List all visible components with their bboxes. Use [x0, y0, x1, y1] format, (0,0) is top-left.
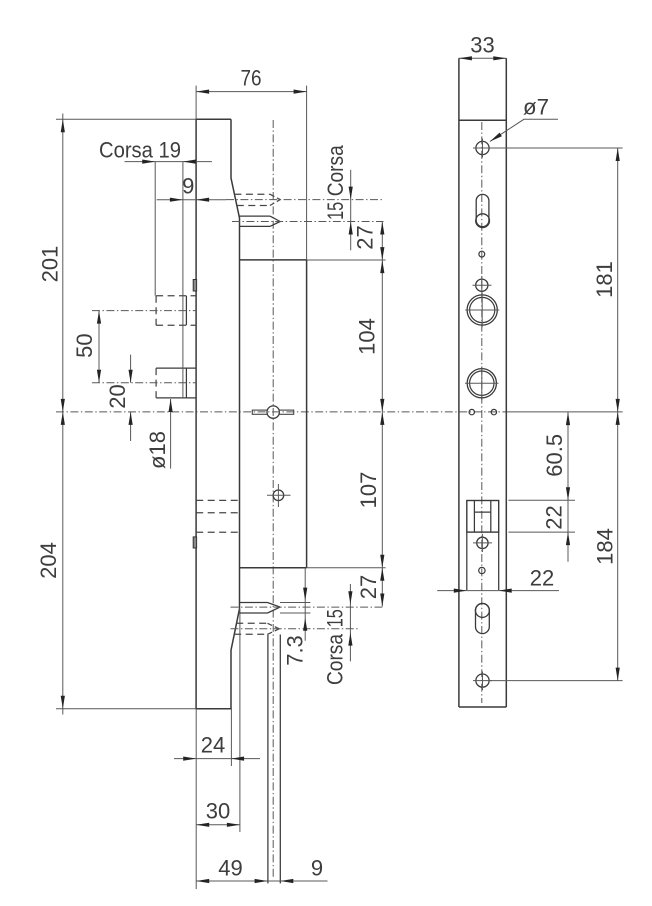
svg-text:30: 30 — [206, 799, 230, 824]
svg-text:22: 22 — [542, 505, 567, 529]
svg-text:7.3: 7.3 — [283, 635, 308, 666]
svg-text:201: 201 — [38, 246, 63, 283]
svg-text:27: 27 — [356, 575, 381, 599]
svg-text:204: 204 — [36, 542, 61, 579]
svg-text:9: 9 — [311, 856, 323, 881]
svg-text:33: 33 — [470, 33, 494, 58]
svg-text:15: 15 — [323, 202, 348, 220]
svg-text:20: 20 — [105, 384, 130, 408]
svg-text:60.5: 60.5 — [542, 434, 567, 477]
svg-text:50: 50 — [72, 333, 97, 357]
svg-text:15: 15 — [323, 609, 348, 627]
svg-text:104: 104 — [355, 318, 380, 355]
svg-text:Corsa 19: Corsa 19 — [99, 138, 181, 163]
svg-text:49: 49 — [218, 856, 242, 881]
svg-text:181: 181 — [592, 261, 617, 298]
svg-text:Corsa: Corsa — [323, 145, 348, 197]
svg-text:76: 76 — [241, 66, 262, 91]
svg-text:27: 27 — [353, 225, 378, 249]
svg-text:22: 22 — [530, 566, 554, 591]
svg-text:ø7: ø7 — [523, 95, 549, 120]
svg-text:107: 107 — [356, 472, 381, 509]
svg-text:ø18: ø18 — [145, 431, 170, 469]
svg-text:184: 184 — [592, 528, 617, 565]
svg-text:9: 9 — [182, 174, 194, 199]
svg-text:Corsa: Corsa — [323, 633, 348, 685]
svg-text:24: 24 — [201, 733, 225, 758]
